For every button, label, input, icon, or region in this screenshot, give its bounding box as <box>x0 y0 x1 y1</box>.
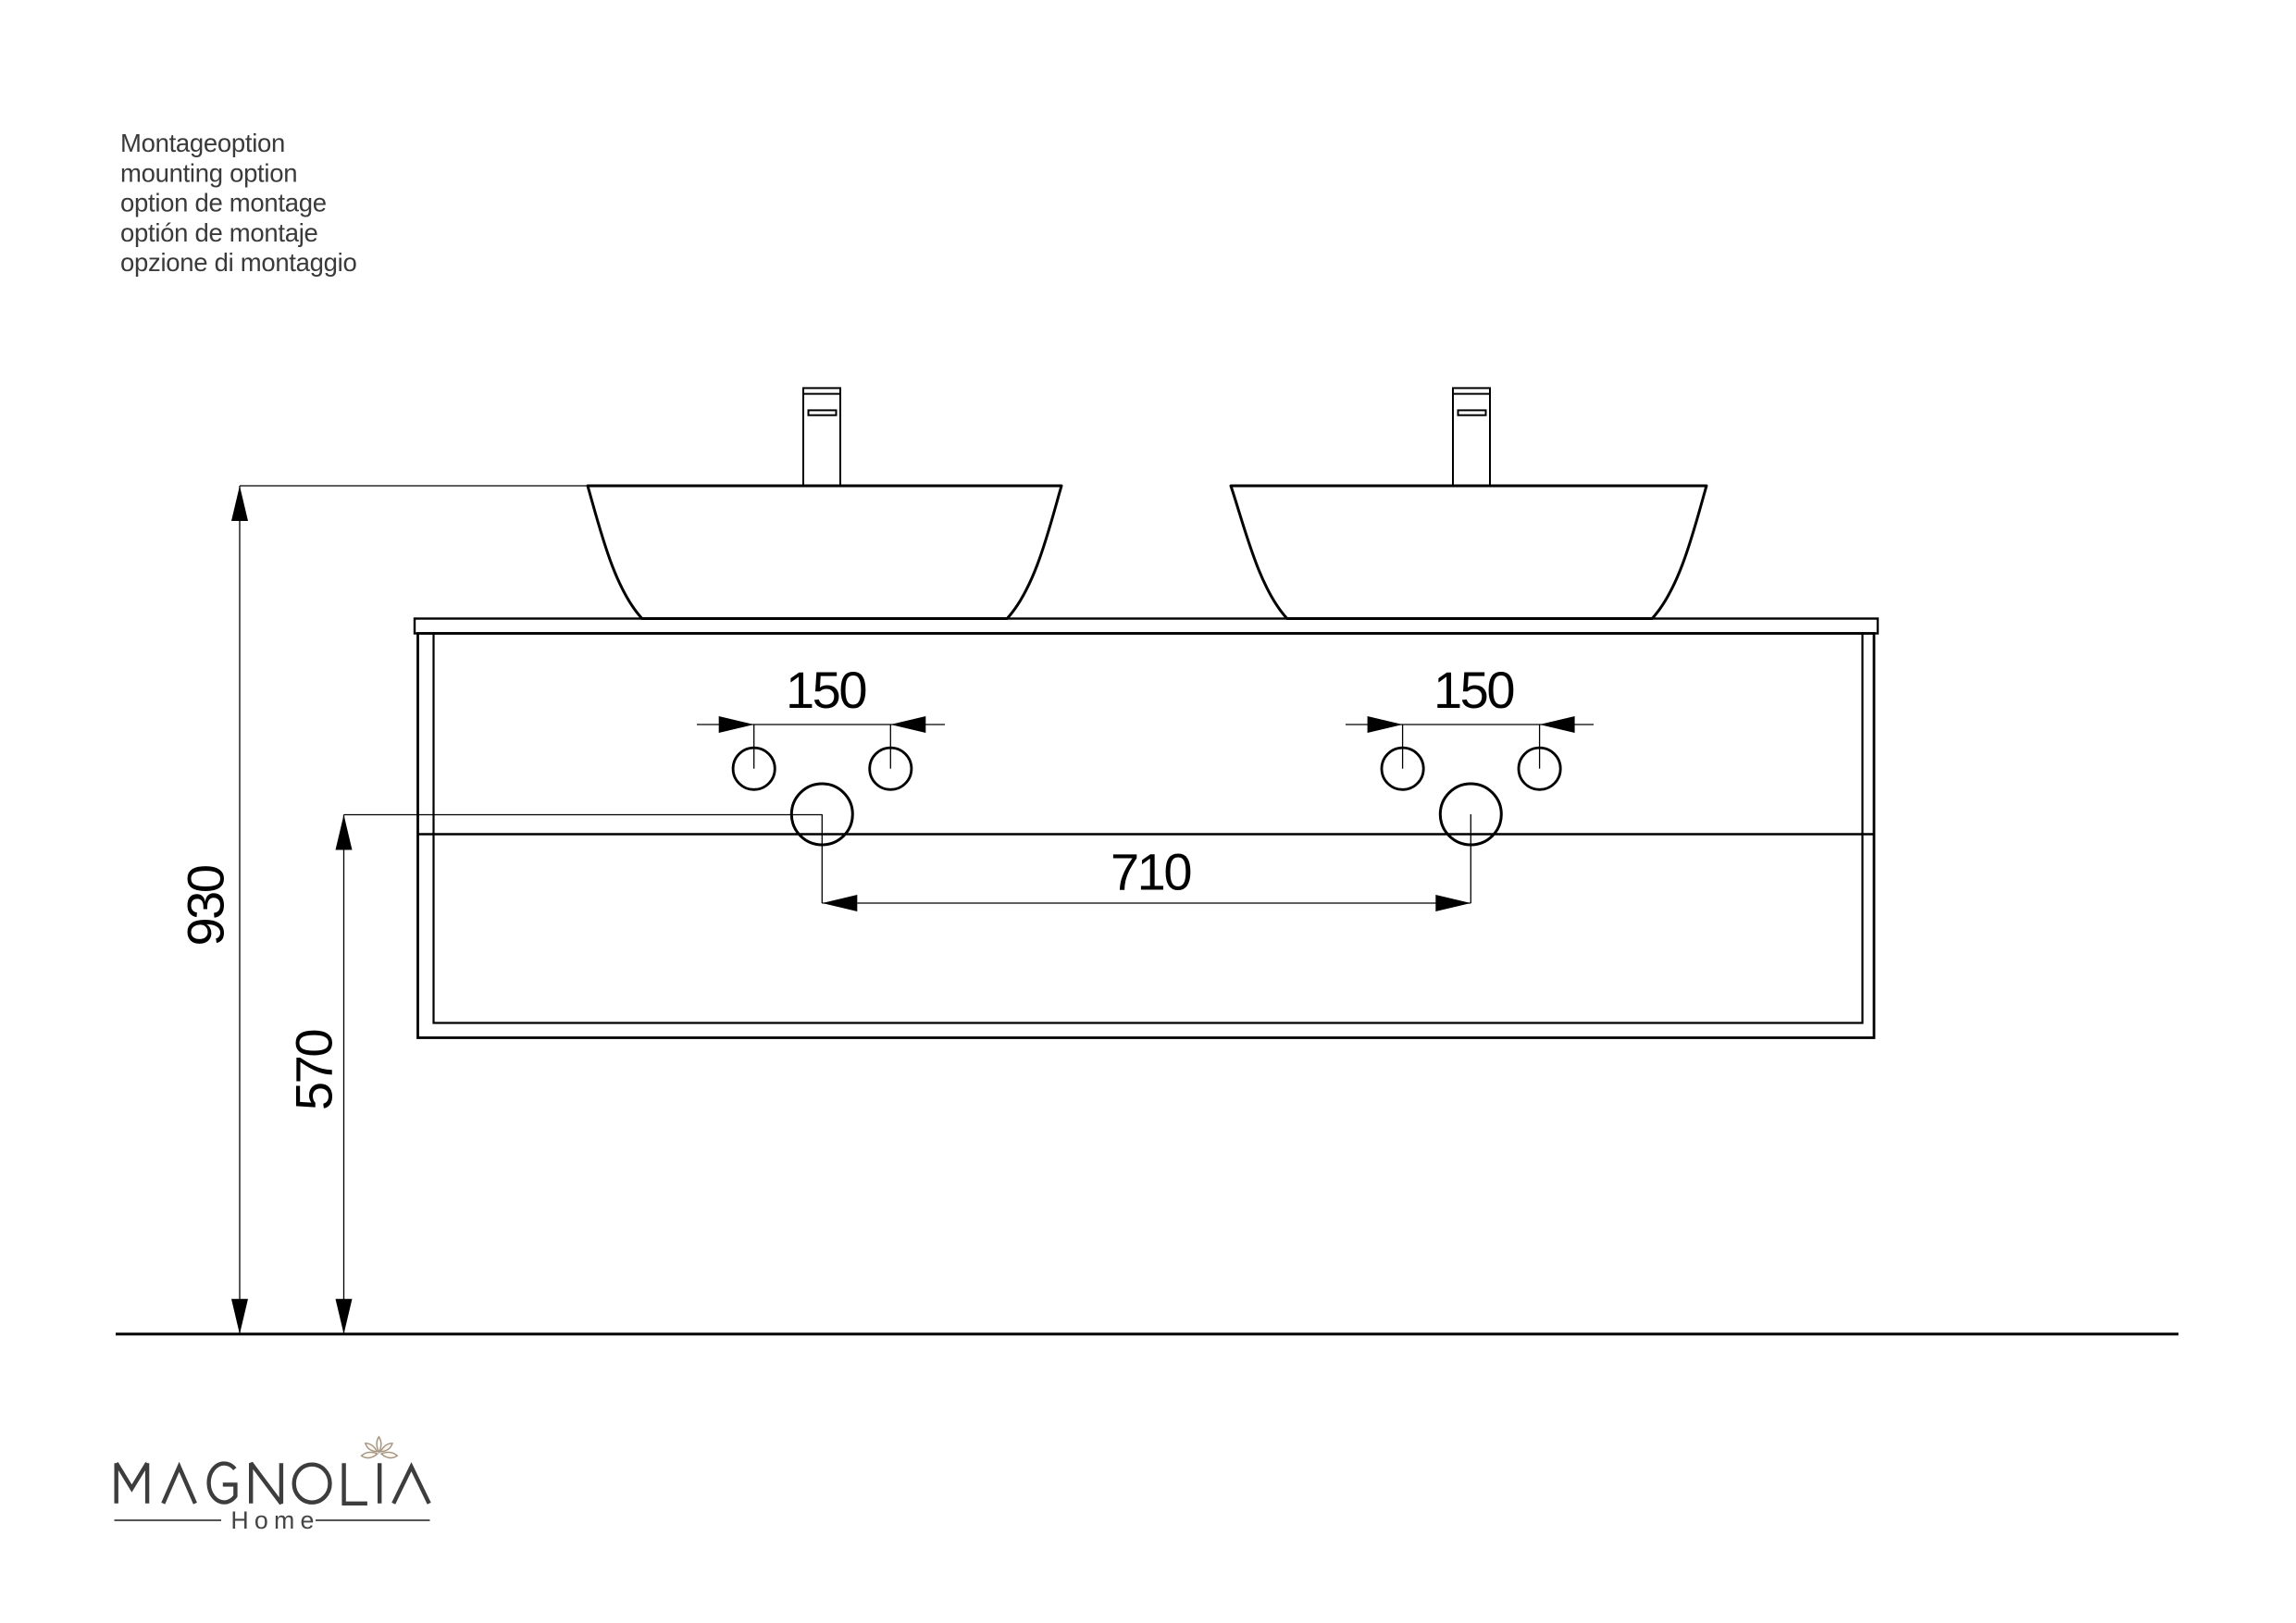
svg-text:option de montage: option de montage <box>120 189 327 217</box>
svg-text:mounting option: mounting option <box>120 158 297 187</box>
svg-text:710: 710 <box>1111 843 1190 901</box>
svg-text:930: 930 <box>177 866 235 946</box>
svg-text:optión de montaje: optión de montaje <box>120 218 318 247</box>
svg-text:opzione di montaggio: opzione di montaggio <box>120 248 356 277</box>
svg-text:570: 570 <box>285 1031 343 1110</box>
svg-text:Home: Home <box>230 1506 319 1534</box>
svg-text:150: 150 <box>786 661 865 719</box>
svg-text:Montageoption: Montageoption <box>120 129 285 157</box>
svg-text:150: 150 <box>1433 661 1513 719</box>
